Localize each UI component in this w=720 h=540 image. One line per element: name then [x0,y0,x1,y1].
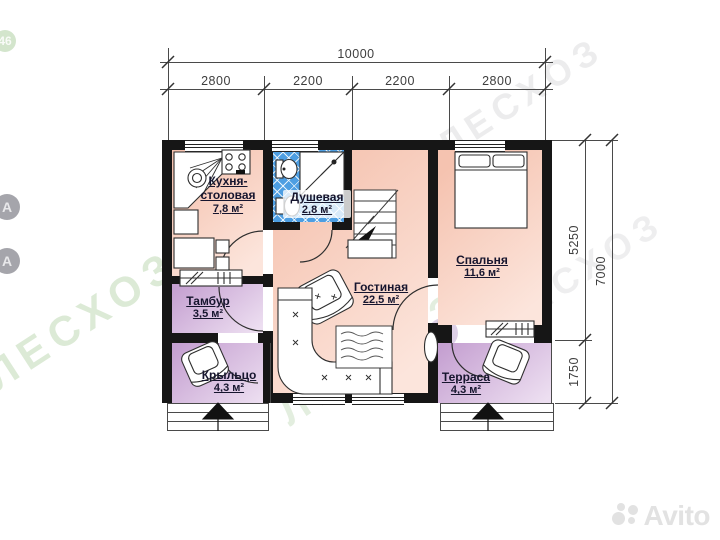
kitchen-label: Кухня- столовая 7,8 м² [178,174,278,216]
dim-segment-width: 2200 [374,74,426,88]
room-name: Спальня [432,253,532,267]
wall-shower-bottom [273,222,300,230]
room-name: Душевая [283,190,351,204]
terrace-label: Терраса 4,3 м² [421,370,511,398]
dim-line-top-segments [160,89,553,90]
wall-bedroom-terrace [438,325,452,343]
dim-extension [555,340,592,341]
dim-extension [555,403,618,404]
dim-extension [545,48,546,140]
watermark-brand-text: ЛЕСХОЗ [0,240,187,400]
room-name: столовая [178,188,278,202]
room-area: 4,3 м² [184,382,274,395]
avito-wordmark: Avito [644,500,710,532]
room-area: 7,8 м² [178,203,278,216]
dim-extension [168,48,169,140]
bedroom-floor [438,150,542,325]
wall-tambur-porch [258,333,273,343]
dim-extension [552,140,618,141]
wall-living-bottom [263,393,438,403]
shower-window [272,140,318,152]
porch-label: Крыльцо 4,3 м² [184,368,274,396]
dim-segment-height: 1750 [567,346,581,398]
wall-tambur-porch [162,333,218,343]
dim-extension [264,76,265,140]
watermark-letter: А [0,248,20,274]
living-window [293,393,345,405]
room-area: 11,6 м² [432,267,532,280]
avito-watermark: Avito [612,500,710,532]
wall-kitchen-tambur [172,276,263,284]
kitchen-window [185,140,243,152]
dim-total-width: 10000 [330,47,382,61]
room-area: 4,3 м² [421,384,511,397]
terrace-steps [440,403,554,431]
terrace-edge [551,343,552,403]
room-name: Крыльцо [184,368,274,382]
dim-extension [449,76,450,140]
room-name: Гостиная [331,280,431,294]
dim-line-top-total [160,62,553,63]
avito-logo-icon [612,503,638,529]
dim-segment-height: 5250 [567,214,581,266]
tambur-label: Тамбур 3,5 м² [168,294,248,322]
wall-bedroom-terrace [534,325,552,343]
room-area: 3,5 м² [168,308,248,321]
living-window [352,393,404,405]
porch-steps [167,403,269,431]
floor-plan-image: ЛЕСХОЗ ЛЕСХОЗ ЛЕСХОЗ ЛЕСХОЗ 46 46 А А А … [0,0,720,540]
wall-kitchen-living [263,274,273,287]
dim-extension [352,76,353,140]
dim-line-right-inner [585,140,586,403]
watermark-letter: А [0,194,20,220]
dim-line-right-outer [612,140,613,403]
dim-segment-width: 2200 [282,74,334,88]
wall-exterior-left [162,140,172,403]
room-name: Тамбур [168,294,248,308]
room-area: 22,5 м² [331,294,431,307]
living-label: Гостиная 22,5 м² [331,280,431,308]
watermark-badge: 46 [0,30,16,52]
dim-total-height: 7000 [594,245,608,297]
room-name: Кухня- [178,174,278,188]
shower-label: Душевая 2,8 м² [283,190,351,218]
bedroom-label: Спальня 11,6 м² [432,253,532,281]
dim-segment-width: 2800 [471,74,523,88]
wall-exterior-right [542,140,552,343]
bedroom-window [455,140,505,152]
room-name: Терраса [421,370,511,384]
dim-segment-width: 2800 [190,74,242,88]
room-area: 2,8 м² [283,204,351,217]
